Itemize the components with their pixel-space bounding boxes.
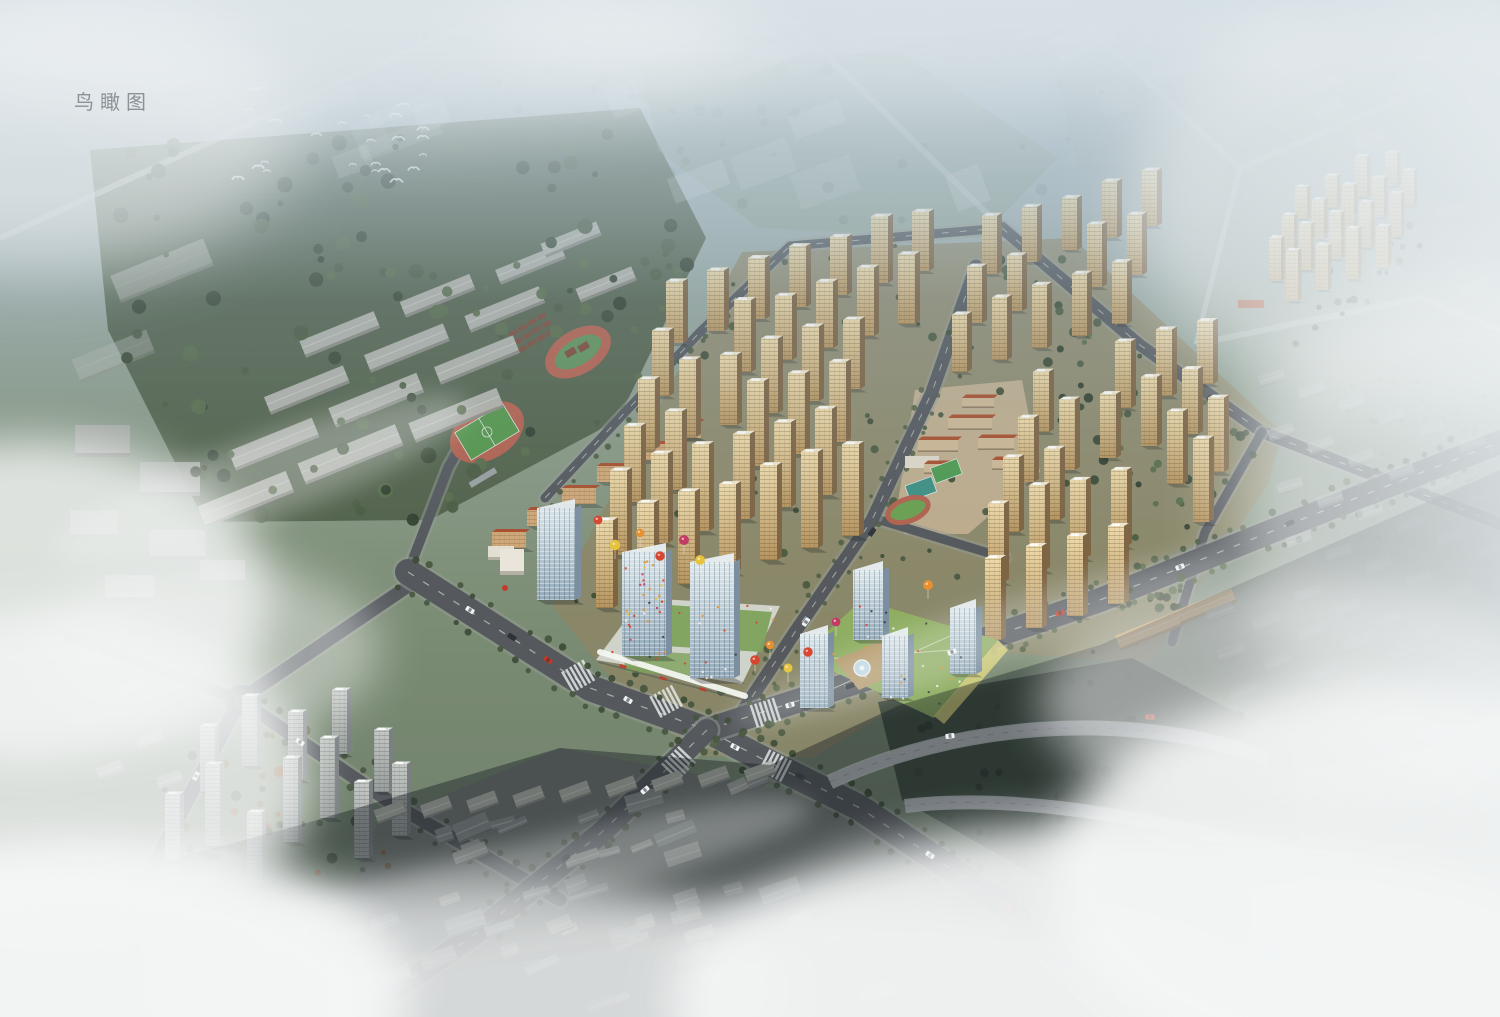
aerial-rendering-canvas: 鸟瞰图 bbox=[0, 0, 1500, 1017]
view-label: 鸟瞰图 bbox=[74, 86, 152, 115]
scene-svg bbox=[0, 0, 1500, 1017]
